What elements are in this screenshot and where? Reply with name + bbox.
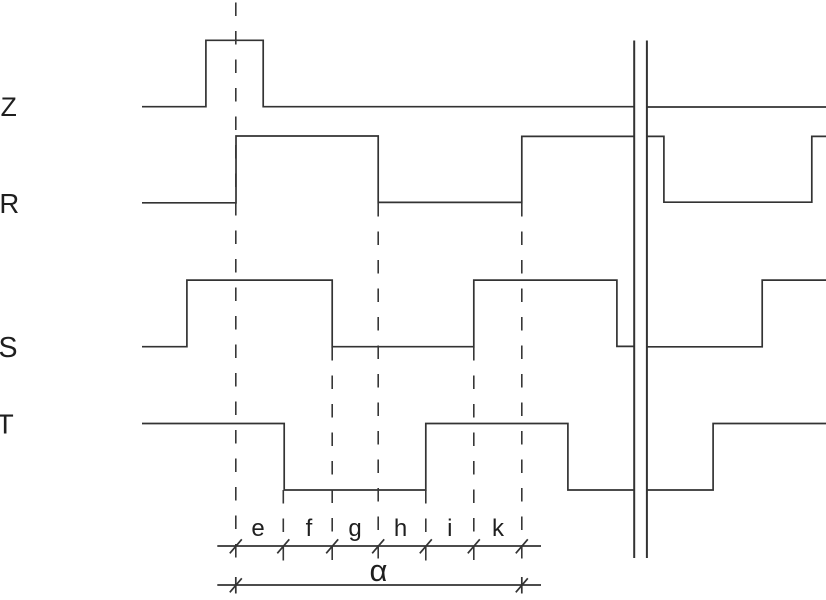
svg-text:i: i <box>447 515 452 542</box>
svg-text:h: h <box>394 515 407 542</box>
svg-text:α: α <box>370 553 388 588</box>
svg-text:S: S <box>0 332 18 364</box>
svg-text:f: f <box>306 515 313 542</box>
svg-text:k: k <box>492 515 505 542</box>
svg-text:g: g <box>348 515 361 542</box>
svg-text:Z: Z <box>1 92 17 122</box>
svg-text:T: T <box>0 408 14 439</box>
svg-text:e: e <box>251 515 264 542</box>
svg-text:R: R <box>0 188 19 219</box>
